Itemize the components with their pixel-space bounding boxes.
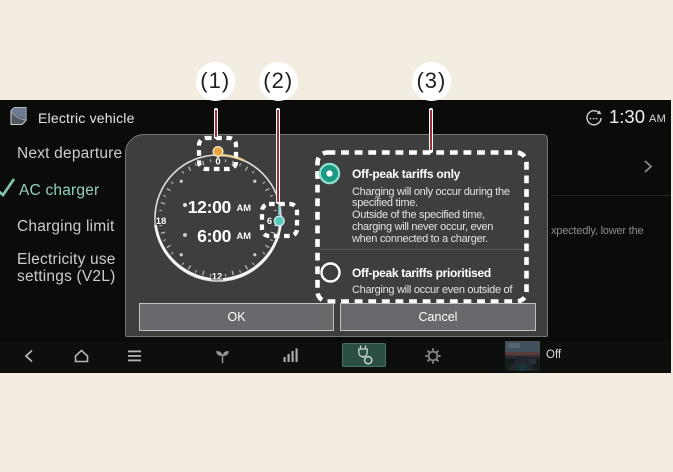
svg-text:12: 12 — [212, 272, 223, 283]
